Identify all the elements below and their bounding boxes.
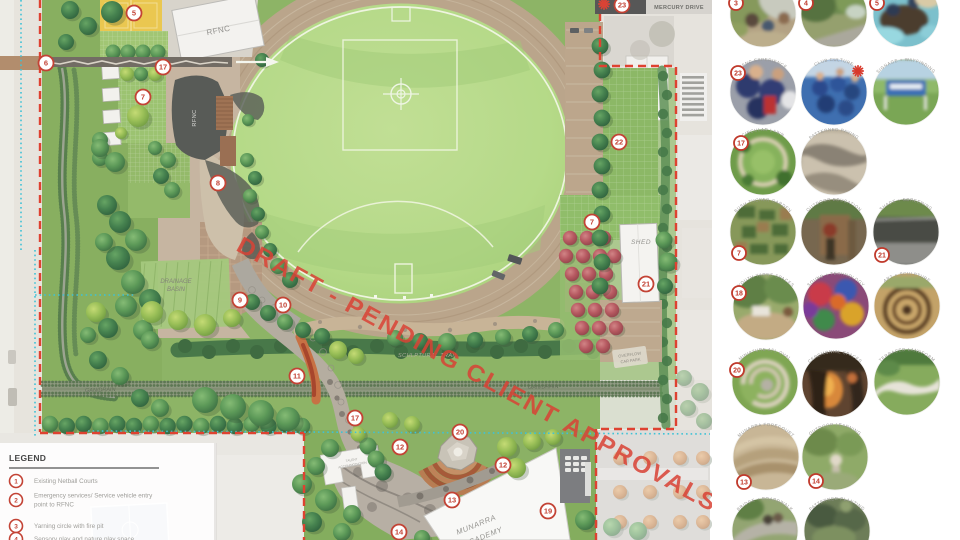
- svg-text:17: 17: [737, 141, 745, 148]
- svg-text:18: 18: [735, 291, 743, 298]
- svg-text:20: 20: [733, 368, 741, 375]
- svg-text:21: 21: [878, 253, 886, 260]
- svg-text:7: 7: [737, 251, 741, 258]
- svg-text:3: 3: [734, 1, 738, 8]
- svg-text:23: 23: [734, 71, 742, 78]
- svg-text:13: 13: [740, 480, 748, 487]
- svg-text:4: 4: [804, 1, 808, 8]
- svg-text:14: 14: [812, 479, 820, 486]
- svg-text:5: 5: [875, 1, 879, 8]
